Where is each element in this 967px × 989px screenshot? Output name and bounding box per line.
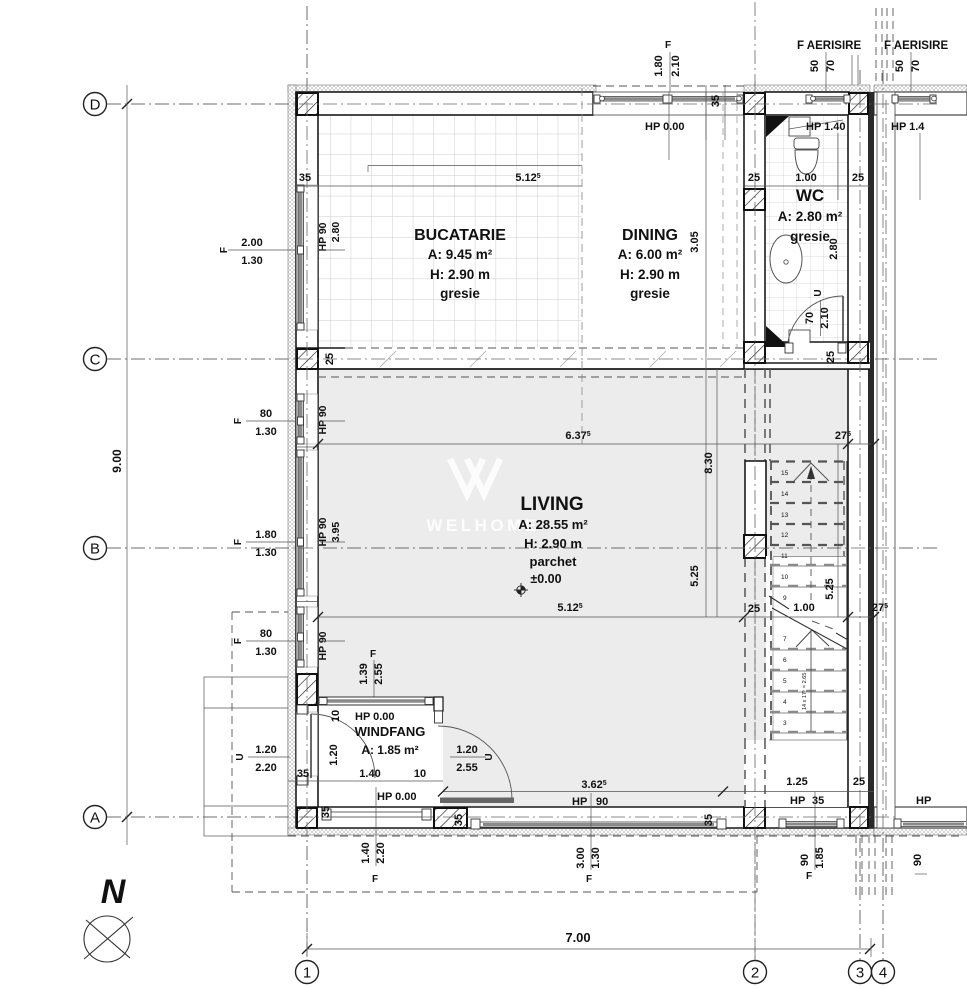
svg-text:9: 9 [783, 595, 787, 602]
svg-text:12: 12 [781, 532, 789, 539]
svg-text:3: 3 [856, 965, 864, 982]
svg-text:HP 90: HP 90 [317, 405, 329, 434]
svg-text:HP: HP [916, 795, 931, 807]
svg-text:3: 3 [783, 720, 787, 727]
svg-text:HP 90: HP 90 [317, 631, 329, 660]
svg-text:F: F [806, 871, 812, 882]
svg-text:2.80: 2.80 [330, 222, 342, 243]
svg-text:HP 1.40: HP 1.40 [806, 121, 846, 133]
svg-text:gresie: gresie [790, 229, 830, 244]
svg-text:1.39: 1.39 [358, 663, 370, 684]
svg-text:25: 25 [852, 172, 864, 184]
svg-text:1.30: 1.30 [255, 426, 276, 438]
svg-text:F: F [233, 418, 244, 424]
svg-text:35: 35 [812, 795, 824, 807]
svg-text:14 x 17⁵ = 2.65: 14 x 17⁵ = 2.65 [801, 673, 808, 710]
svg-text:35: 35 [299, 172, 311, 184]
svg-text:8.30: 8.30 [703, 452, 715, 473]
svg-text:F: F [219, 247, 230, 253]
svg-text:25: 25 [324, 353, 336, 365]
svg-text:25: 25 [748, 172, 760, 184]
svg-text:F: F [370, 649, 376, 660]
svg-text:U: U [235, 753, 246, 760]
svg-text:U: U [813, 289, 824, 296]
svg-text:F AERISIRE: F AERISIRE [797, 40, 861, 52]
svg-text:1.30: 1.30 [241, 255, 262, 267]
svg-text:H: 2.90 m: H: 2.90 m [524, 536, 582, 551]
svg-text:HP: HP [790, 795, 805, 807]
svg-text:F: F [586, 874, 592, 885]
svg-text:2.55: 2.55 [373, 663, 385, 684]
svg-text:25: 25 [825, 351, 837, 363]
svg-text:WINDFANG: WINDFANG [355, 724, 426, 739]
svg-text:A: 2.80 m²: A: 2.80 m² [778, 209, 843, 224]
svg-text:80: 80 [260, 628, 272, 640]
svg-text:2.00: 2.00 [241, 237, 262, 249]
svg-text:2: 2 [751, 965, 759, 982]
svg-text:B: B [90, 541, 100, 558]
svg-text:A: A [90, 810, 100, 827]
svg-text:1.00: 1.00 [795, 172, 816, 184]
svg-text:5.25: 5.25 [689, 565, 701, 586]
svg-text:1.85: 1.85 [814, 847, 826, 868]
svg-text:50: 50 [809, 60, 821, 72]
svg-text:35: 35 [453, 814, 465, 826]
svg-text:13: 13 [781, 512, 789, 519]
svg-text:35: 35 [320, 806, 332, 818]
svg-text:C: C [90, 352, 101, 369]
svg-text:parchet: parchet [530, 554, 578, 569]
svg-text:90: 90 [799, 854, 811, 866]
svg-text:4: 4 [879, 965, 887, 982]
svg-text:N: N [101, 873, 127, 911]
svg-text:2.55: 2.55 [456, 762, 477, 774]
svg-text:A: 6.00 m²: A: 6.00 m² [618, 247, 683, 262]
svg-text:F: F [233, 638, 244, 644]
svg-text:1.40: 1.40 [360, 842, 372, 863]
svg-text:2.20: 2.20 [255, 762, 276, 774]
svg-text:2.20: 2.20 [375, 842, 387, 863]
svg-text:BUCATARIE: BUCATARIE [414, 227, 506, 244]
svg-text:F: F [233, 539, 244, 545]
svg-text:HP 0.00: HP 0.00 [645, 121, 685, 133]
svg-text:70: 70 [825, 60, 837, 72]
svg-text:10: 10 [414, 768, 426, 780]
svg-text:HP 0.00: HP 0.00 [377, 791, 417, 803]
svg-text:4: 4 [783, 699, 787, 706]
svg-text:A: 1.85 m²: A: 1.85 m² [361, 743, 418, 757]
svg-text:1.20: 1.20 [328, 744, 340, 765]
svg-text:gresie: gresie [440, 286, 480, 301]
svg-text:LIVING: LIVING [520, 494, 583, 515]
svg-text:DINING: DINING [622, 227, 678, 244]
svg-text:±0.00: ±0.00 [530, 572, 561, 586]
svg-text:5: 5 [783, 678, 787, 685]
svg-text:3.95: 3.95 [330, 522, 342, 543]
svg-text:80: 80 [260, 408, 272, 420]
svg-text:F AERISIRE: F AERISIRE [884, 40, 948, 52]
svg-text:HP: HP [572, 796, 587, 808]
svg-text:25: 25 [748, 603, 760, 615]
svg-text:A: 28.55 m²: A: 28.55 m² [518, 517, 588, 532]
svg-text:10: 10 [330, 710, 342, 722]
svg-text:1.20: 1.20 [456, 744, 477, 756]
svg-text:H: 2.90 m: H: 2.90 m [620, 267, 680, 282]
svg-text:15: 15 [781, 470, 789, 477]
svg-text:6: 6 [783, 657, 787, 664]
svg-text:10: 10 [781, 574, 789, 581]
svg-text:F: F [665, 40, 671, 51]
svg-text:A: 9.45 m²: A: 9.45 m² [428, 247, 493, 262]
svg-text:11: 11 [781, 553, 788, 560]
svg-text:1: 1 [303, 965, 311, 982]
svg-text:3.00: 3.00 [575, 847, 587, 868]
svg-text:1.25: 1.25 [786, 776, 807, 788]
svg-text:1.80: 1.80 [255, 529, 276, 541]
svg-text:90: 90 [912, 854, 924, 866]
svg-text:9.00: 9.00 [110, 449, 124, 473]
svg-text:2.80: 2.80 [828, 238, 840, 259]
svg-text:1.30: 1.30 [255, 547, 276, 559]
svg-text:35: 35 [710, 95, 722, 107]
svg-text:25: 25 [853, 776, 865, 788]
svg-text:1.80: 1.80 [653, 55, 665, 76]
svg-text:35: 35 [297, 768, 309, 780]
svg-text:70: 70 [804, 312, 816, 324]
svg-text:HP 90: HP 90 [317, 222, 329, 251]
svg-text:14: 14 [781, 491, 789, 498]
svg-text:90: 90 [596, 796, 608, 808]
svg-text:HP 0.00: HP 0.00 [355, 711, 395, 723]
svg-text:F: F [372, 874, 378, 885]
svg-text:35: 35 [703, 814, 715, 826]
svg-text:70: 70 [910, 60, 922, 72]
svg-text:5.25: 5.25 [824, 578, 836, 599]
svg-text:HP 1.4: HP 1.4 [891, 121, 925, 133]
svg-text:1.20: 1.20 [255, 744, 276, 756]
svg-text:H: 2.90 m: H: 2.90 m [430, 267, 490, 282]
svg-text:1.30: 1.30 [590, 847, 602, 868]
svg-text:3.05: 3.05 [689, 231, 701, 252]
svg-text:7: 7 [783, 636, 787, 643]
svg-text:1.00: 1.00 [793, 602, 814, 614]
svg-text:1.30: 1.30 [255, 646, 276, 658]
svg-text:U: U [484, 753, 495, 760]
svg-text:1.40: 1.40 [359, 768, 380, 780]
svg-text:2.10: 2.10 [670, 55, 682, 76]
svg-text:D: D [90, 97, 101, 114]
svg-text:7.00: 7.00 [565, 930, 590, 945]
svg-text:50: 50 [894, 60, 906, 72]
svg-text:WC: WC [796, 186, 824, 205]
svg-text:gresie: gresie [630, 286, 670, 301]
